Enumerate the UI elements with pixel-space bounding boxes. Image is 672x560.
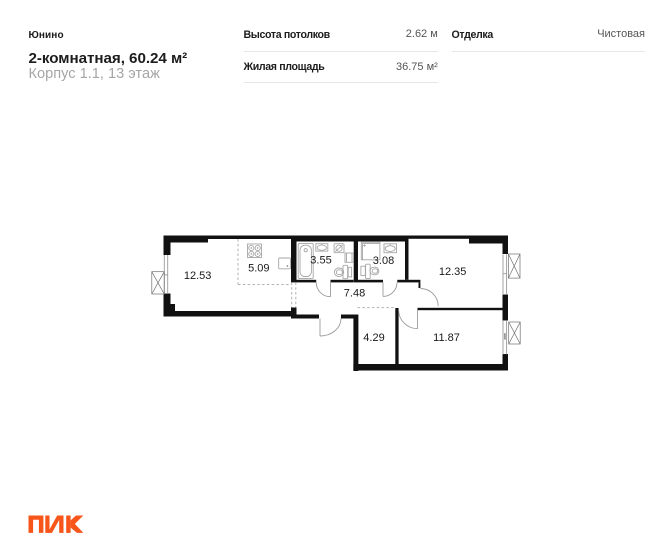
svg-text:4.29: 4.29: [363, 332, 384, 344]
svg-text:3.55: 3.55: [310, 255, 331, 267]
svg-text:12.35: 12.35: [439, 266, 467, 278]
svg-text:5.09: 5.09: [248, 263, 269, 275]
svg-text:11.87: 11.87: [433, 332, 460, 344]
svg-text:7.48: 7.48: [344, 288, 365, 300]
svg-text:12.53: 12.53: [184, 270, 212, 282]
svg-text:3.08: 3.08: [373, 255, 394, 267]
